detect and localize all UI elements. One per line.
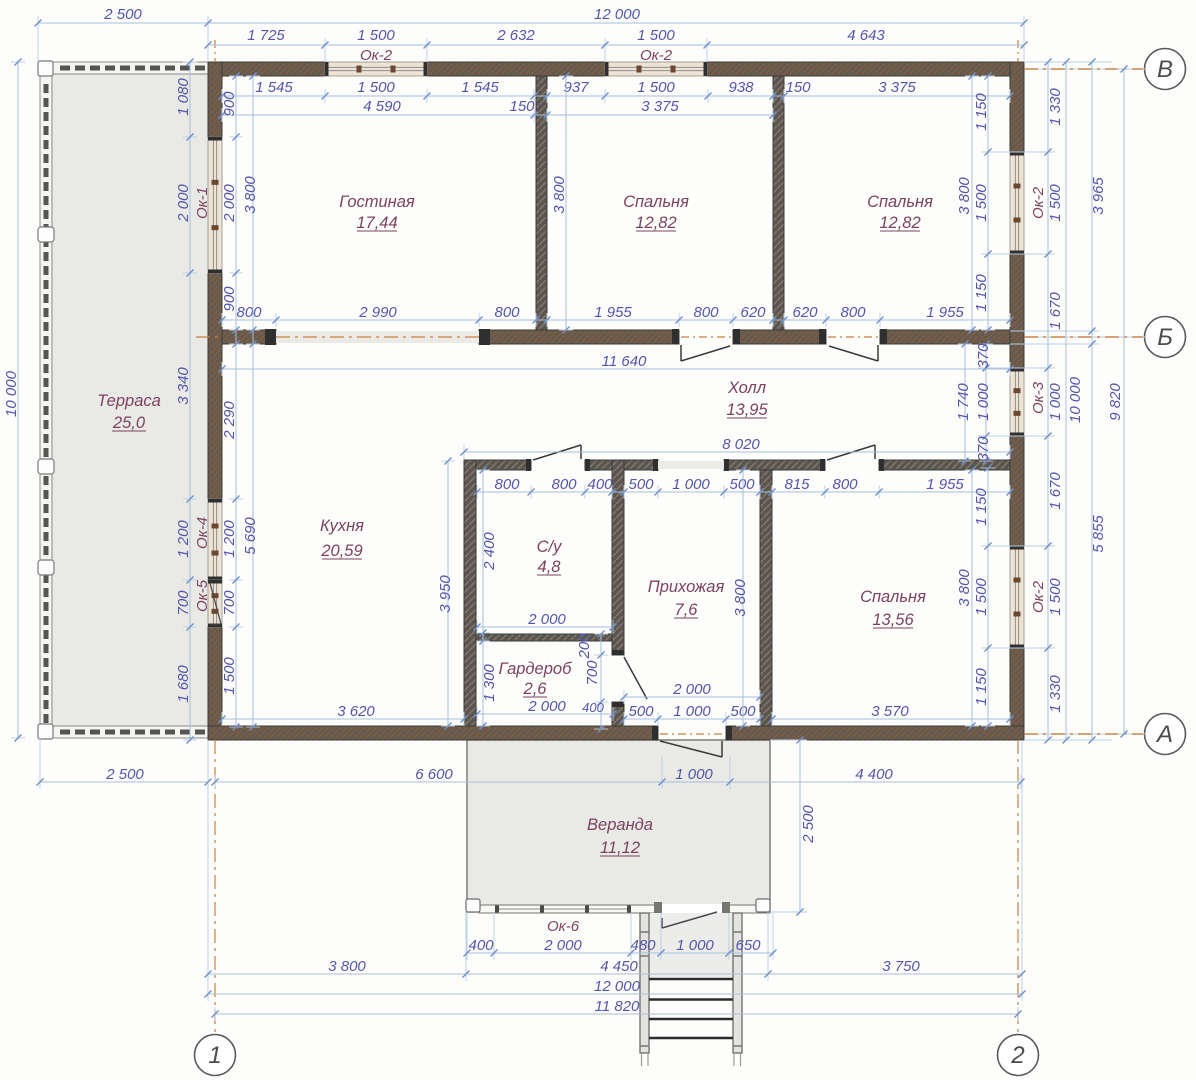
svg-text:1 150: 1 150	[973, 274, 990, 312]
svg-text:Ок-4: Ок-4	[194, 517, 211, 549]
svg-text:1 150: 1 150	[973, 93, 990, 131]
svg-text:370: 370	[975, 436, 992, 462]
svg-text:10 000: 10 000	[3, 370, 20, 417]
svg-text:11 640: 11 640	[602, 353, 647, 370]
svg-text:А: А	[1155, 721, 1173, 748]
svg-text:2 000: 2 000	[175, 184, 192, 223]
svg-text:Холл: Холл	[727, 379, 766, 397]
svg-text:815: 815	[784, 476, 810, 493]
svg-text:2 500: 2 500	[105, 766, 144, 783]
svg-text:3 620: 3 620	[337, 703, 375, 720]
svg-text:4,8: 4,8	[538, 558, 562, 576]
svg-text:500: 500	[628, 476, 654, 493]
svg-text:700: 700	[175, 590, 192, 616]
svg-text:800: 800	[494, 476, 520, 493]
svg-text:11 820: 11 820	[595, 998, 640, 1015]
svg-text:1 330: 1 330	[1047, 675, 1064, 713]
svg-text:1 955: 1 955	[594, 304, 632, 321]
svg-text:1 150: 1 150	[973, 488, 990, 526]
svg-text:Ок-1: Ок-1	[194, 187, 211, 219]
svg-text:150: 150	[509, 98, 535, 115]
svg-text:В: В	[1157, 56, 1173, 83]
svg-text:200: 200	[576, 633, 593, 660]
svg-text:Б: Б	[1157, 324, 1173, 351]
svg-text:11,12: 11,12	[600, 839, 640, 857]
svg-text:620: 620	[740, 304, 766, 321]
svg-text:1 500: 1 500	[357, 79, 395, 96]
svg-text:150: 150	[785, 79, 811, 96]
svg-text:650: 650	[735, 937, 761, 954]
svg-text:1 545: 1 545	[461, 79, 499, 96]
svg-text:3 570: 3 570	[871, 703, 909, 720]
svg-text:3 800: 3 800	[956, 569, 973, 607]
svg-text:1: 1	[208, 1042, 221, 1069]
svg-text:1 300: 1 300	[481, 664, 498, 702]
svg-text:900: 900	[221, 91, 238, 117]
svg-text:1 955: 1 955	[926, 304, 964, 321]
svg-text:2 632: 2 632	[496, 27, 535, 44]
svg-text:13,56: 13,56	[872, 611, 914, 629]
svg-text:5 855: 5 855	[1090, 515, 1107, 553]
svg-text:Гардероб: Гардероб	[499, 660, 572, 678]
svg-text:6 600: 6 600	[415, 766, 453, 783]
svg-text:1 000: 1 000	[673, 703, 711, 720]
svg-text:3 965: 3 965	[1090, 177, 1107, 215]
svg-text:4 450: 4 450	[600, 958, 638, 975]
svg-text:800: 800	[840, 304, 866, 321]
svg-text:3 750: 3 750	[882, 958, 920, 975]
svg-text:С/у: С/у	[537, 538, 564, 556]
svg-text:1 000: 1 000	[672, 476, 710, 493]
svg-text:1 200: 1 200	[221, 520, 238, 558]
svg-text:800: 800	[693, 304, 719, 321]
svg-text:480: 480	[630, 937, 656, 954]
svg-text:1 500: 1 500	[357, 27, 395, 44]
svg-text:2 000: 2 000	[672, 681, 711, 698]
svg-text:Ок-3: Ок-3	[1030, 381, 1047, 414]
svg-text:Спальня: Спальня	[623, 193, 689, 211]
svg-text:Прихожая: Прихожая	[648, 578, 725, 596]
svg-text:3 340: 3 340	[175, 367, 192, 405]
svg-text:12,82: 12,82	[879, 214, 920, 232]
svg-text:2 000: 2 000	[221, 184, 238, 223]
svg-text:3 800: 3 800	[328, 958, 366, 975]
svg-text:900: 900	[221, 286, 238, 312]
svg-text:1 680: 1 680	[175, 665, 192, 703]
svg-text:13,95: 13,95	[726, 401, 768, 419]
svg-text:370: 370	[975, 343, 992, 369]
svg-text:400: 400	[587, 476, 613, 493]
svg-text:800: 800	[494, 304, 520, 321]
svg-text:2 000: 2 000	[527, 611, 566, 628]
svg-text:12 000: 12 000	[594, 978, 641, 995]
svg-text:938: 938	[728, 79, 754, 96]
svg-text:1 500: 1 500	[1047, 578, 1064, 616]
svg-text:1 000: 1 000	[675, 766, 713, 783]
svg-text:7,6: 7,6	[675, 601, 699, 619]
svg-text:800: 800	[551, 476, 577, 493]
svg-text:620: 620	[792, 304, 818, 321]
svg-text:1 500: 1 500	[637, 27, 675, 44]
svg-text:1 330: 1 330	[1047, 88, 1064, 126]
svg-text:3 800: 3 800	[242, 176, 259, 214]
svg-text:2 500: 2 500	[800, 805, 817, 844]
svg-text:800: 800	[236, 304, 262, 321]
svg-text:2 000: 2 000	[527, 698, 566, 715]
svg-text:5 690: 5 690	[242, 517, 259, 555]
svg-text:Кухня: Кухня	[320, 517, 364, 535]
svg-text:1 500: 1 500	[1047, 184, 1064, 222]
svg-text:Гостиная: Гостиная	[339, 193, 415, 211]
svg-text:3 800: 3 800	[732, 579, 749, 617]
svg-text:1 000: 1 000	[975, 383, 992, 421]
svg-text:Ок-2: Ок-2	[360, 47, 393, 64]
svg-text:700: 700	[221, 590, 238, 616]
svg-text:9 820: 9 820	[1107, 383, 1124, 421]
svg-text:1 000: 1 000	[1047, 383, 1064, 421]
svg-text:17,44: 17,44	[356, 214, 397, 232]
svg-text:800: 800	[832, 476, 858, 493]
svg-text:400: 400	[468, 937, 494, 954]
svg-text:20,59: 20,59	[320, 542, 362, 560]
svg-text:1 545: 1 545	[255, 79, 293, 96]
svg-text:2 500: 2 500	[103, 6, 142, 23]
svg-text:2 000: 2 000	[543, 937, 582, 954]
svg-text:3 375: 3 375	[878, 79, 916, 96]
svg-text:12 000: 12 000	[594, 6, 641, 23]
svg-text:Ок-2: Ок-2	[1030, 186, 1047, 219]
svg-text:2 990: 2 990	[358, 304, 397, 321]
svg-text:4 590: 4 590	[363, 98, 401, 115]
svg-text:Ок-5: Ок-5	[194, 579, 211, 612]
svg-text:4 643: 4 643	[847, 27, 885, 44]
svg-text:3 375: 3 375	[641, 98, 679, 115]
svg-text:3 800: 3 800	[551, 176, 568, 214]
svg-text:1 080: 1 080	[175, 78, 192, 116]
svg-text:Спальня: Спальня	[860, 588, 926, 606]
svg-text:1 740: 1 740	[955, 383, 972, 421]
svg-text:400: 400	[582, 700, 604, 715]
svg-text:700: 700	[584, 660, 601, 686]
svg-text:Спальня: Спальня	[867, 193, 933, 211]
svg-text:2,6: 2,6	[523, 680, 548, 698]
svg-text:Ок-2: Ок-2	[640, 47, 673, 64]
svg-text:500: 500	[729, 476, 755, 493]
svg-text:3 950: 3 950	[437, 575, 454, 613]
svg-text:1 670: 1 670	[1047, 472, 1064, 510]
svg-text:1 725: 1 725	[247, 27, 285, 44]
svg-text:1 200: 1 200	[175, 520, 192, 558]
svg-text:500: 500	[628, 703, 654, 720]
svg-text:1 955: 1 955	[926, 476, 964, 493]
svg-text:10 000: 10 000	[1067, 376, 1084, 423]
svg-text:1 500: 1 500	[637, 79, 675, 96]
svg-text:Веранда: Веранда	[587, 816, 653, 834]
svg-text:2 290: 2 290	[221, 401, 238, 440]
svg-text:Терраса: Терраса	[97, 392, 161, 410]
svg-text:3 800: 3 800	[956, 177, 973, 215]
svg-text:1 500: 1 500	[973, 578, 990, 616]
svg-text:1 150: 1 150	[973, 668, 990, 706]
svg-text:1 500: 1 500	[973, 184, 990, 222]
svg-text:25,0: 25,0	[112, 414, 146, 432]
svg-text:12,82: 12,82	[635, 214, 676, 232]
svg-text:2 400: 2 400	[481, 532, 498, 571]
svg-text:8 020: 8 020	[722, 436, 760, 453]
svg-text:Ок-2: Ок-2	[1030, 580, 1047, 613]
svg-text:4 400: 4 400	[855, 766, 893, 783]
svg-text:2: 2	[1010, 1042, 1024, 1069]
svg-text:1 500: 1 500	[221, 657, 238, 695]
svg-text:937: 937	[563, 79, 589, 96]
svg-text:1 000: 1 000	[676, 937, 714, 954]
svg-text:1 670: 1 670	[1047, 292, 1064, 330]
svg-text:Ок-6: Ок-6	[547, 918, 580, 935]
